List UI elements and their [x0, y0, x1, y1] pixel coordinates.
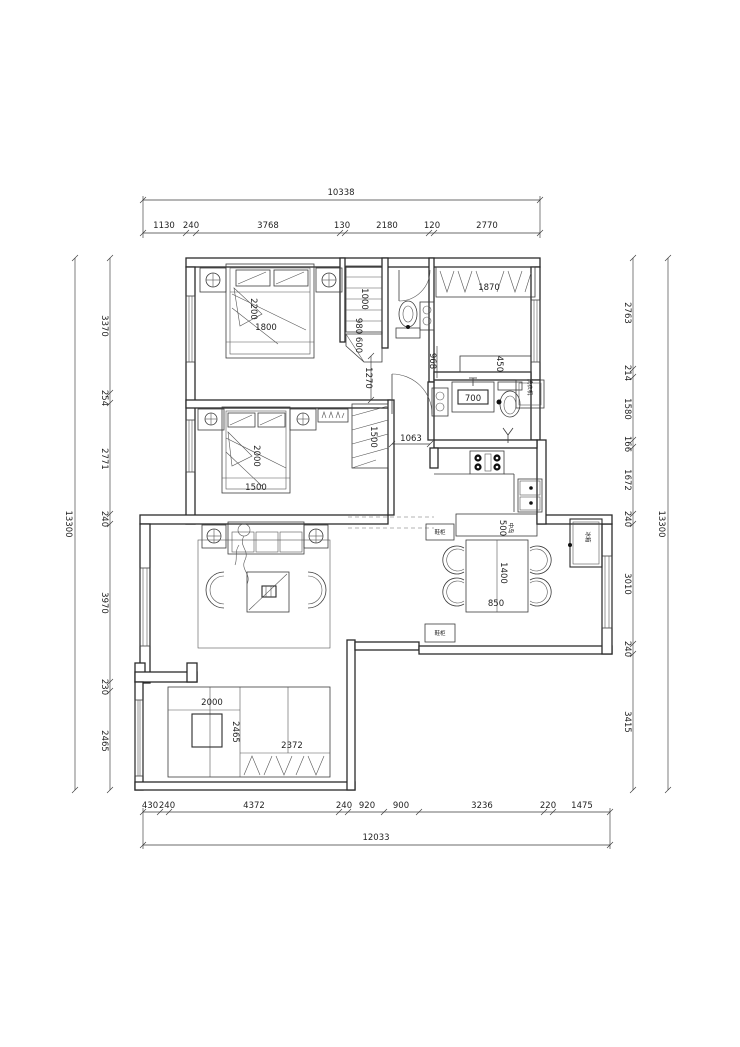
dimension-right: 2763 214 1580 166 1672 240 3010 240 3415…	[622, 255, 671, 793]
nightstand2-right	[290, 409, 316, 430]
dim-right-seg-1: 214	[622, 365, 632, 381]
cloak-room: 1870 450 968	[427, 267, 535, 378]
nightstand2-left	[198, 409, 224, 430]
fridge	[568, 519, 602, 567]
master-bed	[226, 264, 314, 358]
dimension-bottom: 430 240 4372 240 920 900 3236 220 1475 1…	[140, 801, 613, 849]
wardrobe-3	[244, 756, 324, 775]
nightstand-right	[316, 268, 342, 292]
label-lobby-width: 968	[427, 353, 437, 369]
coffee-table	[247, 572, 289, 612]
armchair-left	[206, 572, 224, 608]
label-walk-width: 1270	[363, 367, 373, 389]
toilet-2	[497, 382, 523, 417]
master-bedroom: 2200 1800	[200, 264, 342, 358]
dim-top-seg-5: 120	[424, 221, 440, 231]
label-wardrobe2-width: 1500	[368, 426, 378, 448]
shelf-decor	[318, 409, 348, 422]
label-desk-depth: 2465	[230, 721, 240, 743]
dim-right-seg-2: 1580	[622, 398, 632, 420]
living-room	[198, 522, 330, 648]
dining-room: 1400 850 冰箱 鞋柜	[425, 519, 602, 642]
dim-left-seg-4: 3970	[99, 592, 109, 614]
door-hall-bathroom2	[392, 374, 432, 414]
master-closet: 1000 980 600 1270	[346, 266, 382, 403]
dim-left-seg-5: 230	[99, 679, 109, 695]
dim-right-seg-4: 1672	[622, 469, 632, 491]
label-fridge: 冰箱	[584, 531, 592, 543]
bathroom-2: 700 洗衣机	[432, 378, 544, 443]
floor-plan-drawing: 2200 1800 1000 980 600 1270	[0, 0, 740, 1047]
label-wardrobe3-width: 2372	[281, 741, 303, 751]
dim-left-seg-2: 2771	[99, 448, 109, 470]
label-shelf-b: 600	[353, 337, 363, 353]
side-table-left	[202, 525, 226, 548]
rug	[198, 540, 330, 648]
label-counter-depth: 500	[497, 520, 507, 536]
dim-bottom-overall: 12033	[362, 833, 389, 843]
label-desk-width: 2000	[201, 698, 223, 708]
dim-right-seg-6: 3010	[622, 573, 632, 595]
dim-bottom-seg-0: 430	[142, 801, 158, 811]
label-table-width: 850	[488, 599, 504, 609]
dim-bottom-seg-4: 920	[359, 801, 375, 811]
label-shoe-cabinet-a: 鞋柜	[434, 528, 446, 536]
door-bathroom1	[399, 270, 430, 301]
dim-left-seg-1: 254	[99, 390, 109, 406]
dim-right-seg-8: 3415	[622, 711, 632, 733]
dim-top-seg-0: 1130	[153, 221, 175, 231]
label-table-length: 1400	[498, 562, 508, 584]
study-room: 2000 2465 2372	[168, 687, 330, 777]
dim-left-seg-3: 240	[99, 511, 109, 527]
dim-bottom-seg-7: 220	[540, 801, 556, 811]
nightstand-left	[200, 268, 226, 292]
dim-right-seg-7: 240	[622, 641, 632, 657]
dimension-top: 10338 1130 240 3768 130 2180 120 2770	[140, 188, 543, 238]
dim-top-seg-1: 240	[183, 221, 199, 231]
label-island: 中岛	[507, 522, 515, 534]
dim-left-overall: 13300	[63, 510, 73, 537]
dim-top-seg-4: 2180	[376, 221, 398, 231]
label-bed2-length: 2000	[251, 445, 261, 467]
toilet-1	[396, 301, 420, 338]
dim-bottom-seg-3: 240	[336, 801, 352, 811]
armchair-right	[308, 572, 326, 608]
floor-plan-page: 2200 1800 1000 980 600 1270	[0, 0, 740, 1047]
label-vanity-width: 700	[465, 394, 481, 404]
label-closet-height: 1000	[359, 288, 369, 310]
dim-bottom-seg-6: 3236	[471, 801, 493, 811]
dim-top-seg-6: 2770	[476, 221, 498, 231]
label-shoe-cabinet-b: 鞋柜	[434, 629, 446, 637]
dim-bottom-seg-2: 4372	[243, 801, 265, 811]
label-washer: 洗衣机	[526, 379, 534, 396]
dim-left-seg-0: 3370	[99, 315, 109, 337]
dim-top-seg-3: 130	[334, 221, 350, 231]
dim-top-overall: 10338	[327, 188, 354, 198]
dim-left-seg-6: 2465	[99, 730, 109, 752]
dim-bottom-seg-1: 240	[159, 801, 175, 811]
dim-right-seg-3: 166	[622, 436, 632, 452]
label-hall-width: 1063	[400, 434, 422, 444]
dim-right-seg-0: 2763	[622, 302, 632, 324]
dim-top-seg-2: 3768	[257, 221, 279, 231]
dimension-left: 13300 3370 254 2771 240 3970 230 2465	[63, 255, 113, 793]
bedroom-2: 2000 1500 1500 1063	[198, 404, 433, 493]
bathroom-1	[396, 301, 434, 338]
label-shelf-a: 980	[353, 318, 363, 334]
sofa	[228, 522, 304, 554]
label-bed1-length: 2200	[248, 298, 258, 320]
label-bed2-width: 1500	[245, 483, 267, 493]
stove	[470, 451, 504, 474]
dim-right-seg-5: 240	[622, 511, 632, 527]
label-wardrobe-main: 1870	[478, 283, 500, 293]
side-table-right	[304, 525, 328, 548]
kitchen: 500 中岛 鞋柜	[348, 451, 542, 540]
label-shelf-depth: 450	[494, 356, 504, 372]
island-counter	[456, 514, 537, 536]
dim-right-overall: 13300	[656, 510, 666, 537]
doors	[392, 270, 432, 414]
label-bed1-width: 1800	[255, 323, 277, 333]
dim-bottom-seg-5: 900	[393, 801, 409, 811]
dim-bottom-seg-8: 1475	[571, 801, 593, 811]
